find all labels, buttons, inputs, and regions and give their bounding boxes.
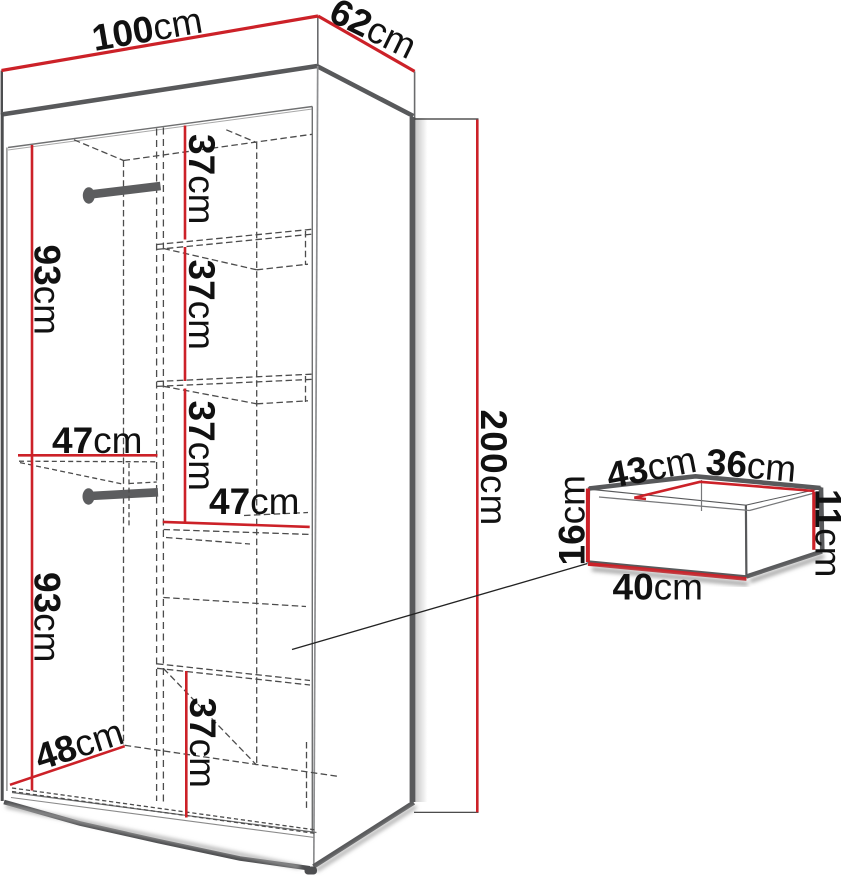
svg-text:200cm: 200cm: [473, 410, 514, 527]
svg-text:37cm: 37cm: [181, 401, 222, 491]
svg-text:37cm: 37cm: [181, 134, 222, 224]
svg-text:48cm: 48cm: [30, 711, 129, 778]
svg-text:47cm: 47cm: [209, 481, 299, 522]
svg-text:47cm: 47cm: [52, 420, 142, 461]
svg-text:11cm: 11cm: [808, 489, 842, 577]
svg-text:40cm: 40cm: [613, 567, 703, 608]
svg-text:36cm: 36cm: [704, 441, 798, 490]
svg-text:93cm: 93cm: [27, 245, 68, 335]
svg-text:93cm: 93cm: [27, 572, 68, 662]
svg-text:16cm: 16cm: [552, 475, 593, 565]
svg-text:37cm: 37cm: [182, 698, 223, 788]
svg-text:37cm: 37cm: [181, 260, 222, 350]
